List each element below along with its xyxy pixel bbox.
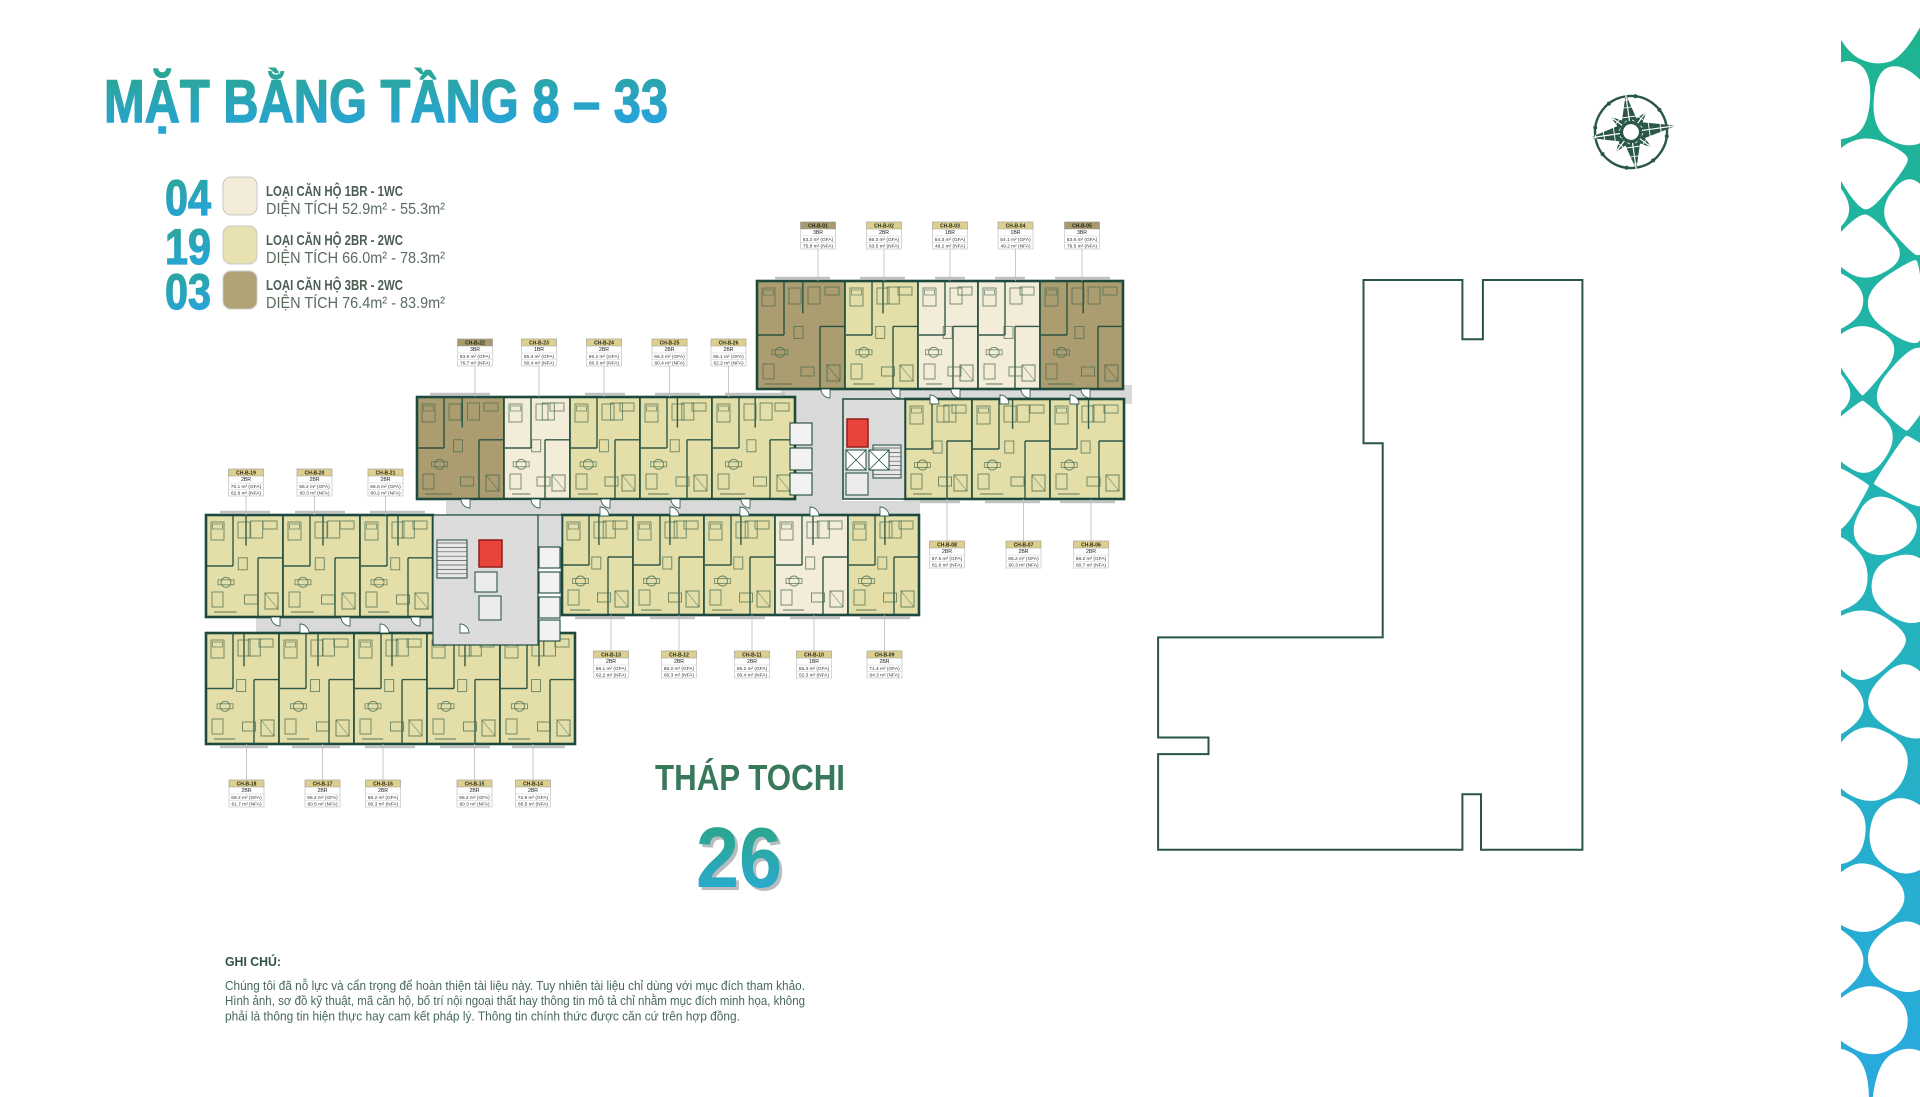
svg-text:2BR: 2BR — [241, 477, 251, 483]
svg-text:phải là thông tin hiện thực ha: phải là thông tin hiện thực hay cam kết … — [225, 1008, 740, 1023]
svg-text:52.3 m² (NFA): 52.3 m² (NFA) — [799, 673, 830, 679]
svg-text:67.6 m² (GFA): 67.6 m² (GFA) — [932, 556, 963, 562]
svg-text:83.6 m² (GFA): 83.6 m² (GFA) — [1067, 237, 1098, 243]
svg-text:CH-B-11: CH-B-11 — [742, 652, 762, 658]
svg-text:2BR: 2BR — [378, 788, 388, 794]
svg-text:CH-B-02: CH-B-02 — [874, 223, 894, 229]
svg-text:60.3 m² (NFA): 60.3 m² (NFA) — [664, 673, 695, 679]
svg-text:CH-B-10: CH-B-10 — [804, 652, 824, 658]
svg-text:CH-B-22: CH-B-22 — [465, 340, 485, 346]
svg-text:66.1 m² (GFA): 66.1 m² (GFA) — [713, 354, 744, 360]
svg-text:66.3 m² (GFA): 66.3 m² (GFA) — [869, 237, 900, 243]
svg-text:DIỆN TÍCH 76.4m² - 83.9m²: DIỆN TÍCH 76.4m² - 83.9m² — [266, 293, 446, 312]
svg-text:3BR: 3BR — [813, 230, 823, 236]
svg-text:66.2 m² (GFA): 66.2 m² (GFA) — [368, 795, 399, 801]
svg-text:71.4 m² (GFA): 71.4 m² (GFA) — [869, 666, 900, 672]
svg-text:CH-B-19: CH-B-19 — [236, 470, 256, 476]
svg-text:CH-B-01: CH-B-01 — [808, 223, 828, 229]
svg-text:55.3 m² (GFA): 55.3 m² (GFA) — [524, 354, 555, 360]
svg-text:04: 04 — [165, 170, 211, 226]
svg-text:61.7 m² (NFA): 61.7 m² (NFA) — [231, 802, 262, 808]
svg-text:26: 26 — [696, 811, 782, 906]
svg-text:2BR: 2BR — [380, 477, 390, 483]
svg-text:2BR: 2BR — [528, 788, 538, 794]
svg-text:64.3 m² (NFA): 64.3 m² (NFA) — [869, 673, 900, 679]
svg-text:66.2 m² (GFA): 66.2 m² (GFA) — [307, 795, 338, 801]
svg-text:2BR: 2BR — [674, 659, 684, 665]
svg-text:03: 03 — [165, 264, 211, 320]
svg-text:65.5 m² (NFA): 65.5 m² (NFA) — [518, 802, 549, 808]
svg-text:3BR: 3BR — [470, 347, 480, 353]
svg-text:62.2 m² (NFA): 62.2 m² (NFA) — [713, 361, 744, 367]
svg-text:LOẠI CĂN HỘ 3BR - 2WC: LOẠI CĂN HỘ 3BR - 2WC — [266, 276, 403, 294]
svg-text:75.8 m² (NFA): 75.8 m² (NFA) — [803, 244, 834, 250]
svg-text:70.1 m² (GFA): 70.1 m² (GFA) — [231, 484, 262, 490]
svg-text:CH-B-06: CH-B-06 — [1081, 542, 1101, 548]
svg-text:60.3 m² (NFA): 60.3 m² (NFA) — [459, 802, 490, 808]
svg-text:2BR: 2BR — [879, 230, 889, 236]
svg-text:66.2 m² (GFA): 66.2 m² (GFA) — [589, 354, 620, 360]
svg-text:Chúng tôi đã nỗ lực và cẩn trọ: Chúng tôi đã nỗ lực và cẩn trọng để hoàn… — [225, 978, 805, 993]
svg-text:2BR: 2BR — [469, 788, 479, 794]
svg-text:2BR: 2BR — [723, 347, 733, 353]
svg-text:68.1 m² (GFA): 68.1 m² (GFA) — [596, 666, 627, 672]
svg-text:66.2 m² (GFA): 66.2 m² (GFA) — [654, 354, 685, 360]
svg-text:2BR: 2BR — [599, 347, 609, 353]
svg-text:CH-B-26: CH-B-26 — [719, 340, 739, 346]
svg-text:66.2 m² (GFA): 66.2 m² (GFA) — [1008, 556, 1039, 562]
svg-text:CH-B-07: CH-B-07 — [1014, 542, 1034, 548]
svg-text:2BR: 2BR — [664, 347, 674, 353]
svg-text:CH-B-20: CH-B-20 — [305, 470, 325, 476]
svg-text:1BR: 1BR — [945, 230, 955, 236]
svg-text:MẶT BẰNG TẦNG 8 – 33: MẶT BẰNG TẦNG 8 – 33 — [104, 68, 668, 135]
svg-text:76.5 m² (NFA): 76.5 m² (NFA) — [1067, 244, 1098, 250]
svg-text:2BR: 2BR — [1086, 549, 1096, 555]
svg-text:CH-B-04: CH-B-04 — [1006, 223, 1026, 229]
svg-text:68.2 m² (GFA): 68.2 m² (GFA) — [1076, 556, 1107, 562]
svg-text:50.4 m² (NFA): 50.4 m² (NFA) — [524, 361, 555, 367]
svg-text:DIỆN TÍCH 66.0m² - 78.3m²: DIỆN TÍCH 66.0m² - 78.3m² — [266, 248, 446, 267]
svg-text:CH-B-14: CH-B-14 — [523, 781, 543, 787]
svg-text:2BR: 2BR — [606, 659, 616, 665]
svg-text:83.9 m² (GFA): 83.9 m² (GFA) — [460, 354, 491, 360]
svg-text:CH-B-18: CH-B-18 — [237, 781, 257, 787]
svg-text:66.0 m² (GFA): 66.0 m² (GFA) — [370, 484, 401, 490]
svg-text:62.6 m² (NFA): 62.6 m² (NFA) — [231, 491, 262, 497]
svg-text:CH-B-08: CH-B-08 — [937, 542, 957, 548]
svg-text:60.5 m² (NFA): 60.5 m² (NFA) — [307, 802, 338, 808]
svg-text:83.2 m² (GFA): 83.2 m² (GFA) — [803, 237, 834, 243]
svg-text:CH-B-09: CH-B-09 — [875, 652, 895, 658]
svg-text:CH-B-17: CH-B-17 — [313, 781, 333, 787]
svg-text:60.2 m² (NFA): 60.2 m² (NFA) — [370, 491, 401, 497]
svg-text:CH-B-05: CH-B-05 — [1072, 223, 1092, 229]
svg-text:60.4 m² (NFA): 60.4 m² (NFA) — [737, 673, 768, 679]
svg-text:CH-B-21: CH-B-21 — [376, 470, 396, 476]
svg-text:3BR: 3BR — [1077, 230, 1087, 236]
svg-text:1BR: 1BR — [534, 347, 544, 353]
svg-text:66.2 m² (GFA): 66.2 m² (GFA) — [299, 484, 330, 490]
svg-text:61.6 m² (NFA): 61.6 m² (NFA) — [932, 563, 963, 569]
svg-text:66.2 m² (GFA): 66.2 m² (GFA) — [737, 666, 768, 672]
svg-text:LOẠI CĂN HỘ 2BR - 2WC: LOẠI CĂN HỘ 2BR - 2WC — [266, 231, 403, 249]
svg-text:55.3 m² (GFA): 55.3 m² (GFA) — [799, 666, 830, 672]
svg-text:2BR: 2BR — [747, 659, 757, 665]
svg-text:CH-B-12: CH-B-12 — [669, 652, 689, 658]
svg-text:CH-B-13: CH-B-13 — [601, 652, 621, 658]
svg-text:1BR: 1BR — [809, 659, 819, 665]
svg-text:DIỆN TÍCH 52.9m² - 55.3m²: DIỆN TÍCH 52.9m² - 55.3m² — [266, 199, 446, 218]
svg-text:54.1 m² (GFA): 54.1 m² (GFA) — [1000, 237, 1031, 243]
svg-text:Hình ảnh, sơ đồ kỹ thuật, mã c: Hình ảnh, sơ đồ kỹ thuật, mã căn hộ, bố … — [225, 993, 805, 1008]
svg-text:1BR: 1BR — [1010, 230, 1020, 236]
svg-text:66.2 m² (GFA): 66.2 m² (GFA) — [459, 795, 490, 801]
svg-text:GHI CHÚ:: GHI CHÚ: — [225, 954, 281, 969]
svg-text:49.2 m² (NFA): 49.2 m² (NFA) — [1000, 244, 1031, 250]
svg-text:60.3 m² (NFA): 60.3 m² (NFA) — [1008, 563, 1039, 569]
svg-text:76.7 m² (NFA): 76.7 m² (NFA) — [460, 361, 491, 367]
svg-text:THÁP TOCHI: THÁP TOCHI — [655, 757, 845, 798]
svg-text:49.2 m² (NFA): 49.2 m² (NFA) — [935, 244, 966, 250]
svg-text:2BR: 2BR — [317, 788, 327, 794]
svg-text:CH-B-23: CH-B-23 — [529, 340, 549, 346]
svg-text:2BR: 2BR — [942, 549, 952, 555]
svg-text:2BR: 2BR — [1018, 549, 1028, 555]
svg-text:60.3 m² (NFA): 60.3 m² (NFA) — [299, 491, 330, 497]
svg-text:72.9 m² (GFA): 72.9 m² (GFA) — [518, 795, 549, 801]
svg-text:60.4 m² (NFA): 60.4 m² (NFA) — [654, 361, 685, 367]
svg-text:CH-B-15: CH-B-15 — [465, 781, 485, 787]
svg-text:69.2 m² (GFA): 69.2 m² (GFA) — [231, 795, 262, 801]
svg-text:CH-B-24: CH-B-24 — [594, 340, 614, 346]
svg-text:CH-B-25: CH-B-25 — [660, 340, 680, 346]
svg-text:60.3 m² (NFA): 60.3 m² (NFA) — [368, 802, 399, 808]
svg-text:2BR: 2BR — [309, 477, 319, 483]
svg-text:66.2 m² (GFA): 66.2 m² (GFA) — [664, 666, 695, 672]
svg-text:LOẠI CĂN HỘ 1BR - 1WC: LOẠI CĂN HỘ 1BR - 1WC — [266, 182, 403, 200]
svg-text:2BR: 2BR — [879, 659, 889, 665]
svg-text:2BR: 2BR — [241, 788, 251, 794]
svg-text:CH-B-16: CH-B-16 — [373, 781, 393, 787]
svg-text:54.3 m² (GFA): 54.3 m² (GFA) — [935, 237, 966, 243]
svg-text:60.7 m² (NFA): 60.7 m² (NFA) — [1076, 563, 1107, 569]
svg-text:CH-B-03: CH-B-03 — [940, 223, 960, 229]
svg-text:62.2 m² (NFA): 62.2 m² (NFA) — [596, 673, 627, 679]
svg-text:63.5 m² (NFA): 63.5 m² (NFA) — [869, 244, 900, 250]
svg-text:60.3 m² (NFA): 60.3 m² (NFA) — [589, 361, 620, 367]
